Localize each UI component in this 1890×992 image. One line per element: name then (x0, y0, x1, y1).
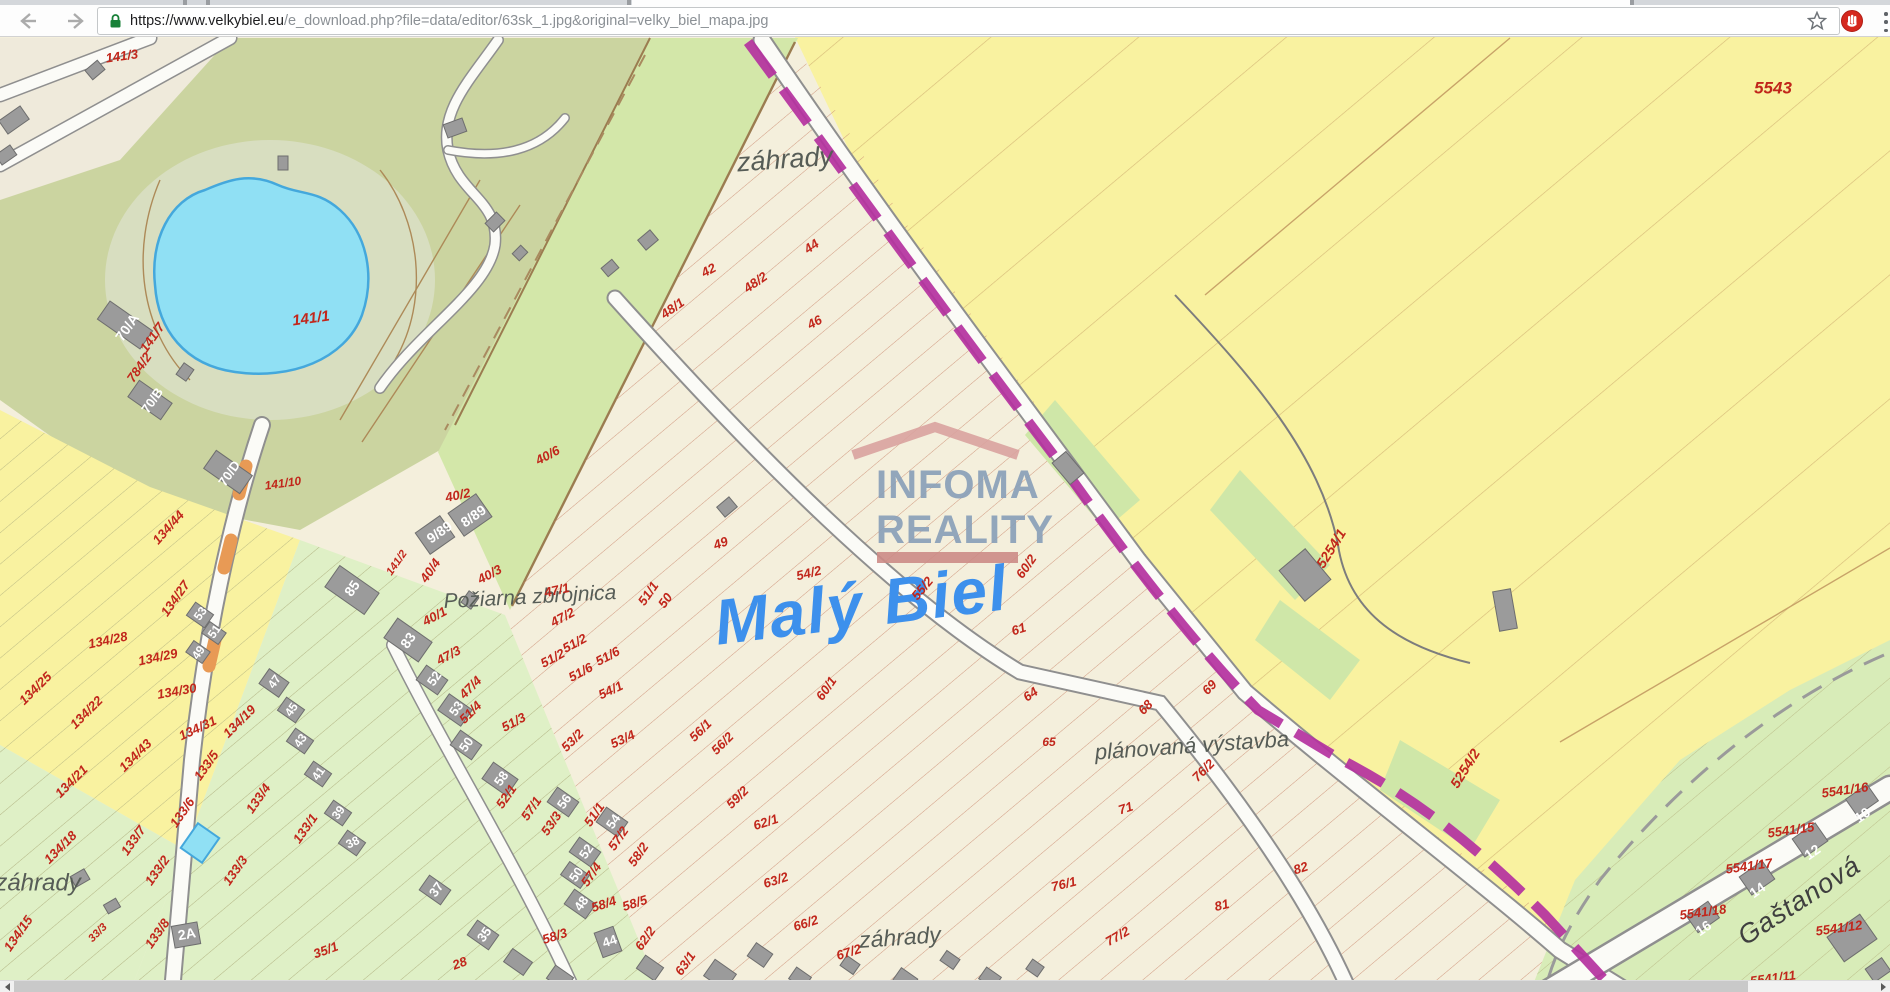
forward-button[interactable] (64, 9, 88, 33)
bookmark-star-button[interactable] (1805, 10, 1829, 32)
map-label: záhrady (0, 869, 83, 896)
address-bar[interactable]: https://www.velkybiel.eu/e_download.php?… (97, 7, 1840, 35)
map-label: 2A (177, 924, 197, 943)
map-label: 5543 (1754, 78, 1792, 97)
horizontal-scrollbar[interactable] (0, 980, 1890, 992)
extension-button[interactable] (1840, 9, 1864, 33)
building (278, 156, 288, 170)
url-domain: https://www.velkybiel.eu (130, 13, 284, 29)
url-path: /e_download.php?file=data/editor/63sk_1.… (284, 13, 768, 29)
back-button[interactable] (16, 9, 40, 33)
forward-icon (65, 10, 87, 32)
url-text: https://www.velkybiel.eu/e_download.php?… (130, 13, 768, 29)
menu-button[interactable] (1882, 12, 1890, 32)
star-icon (1807, 11, 1827, 31)
scroll-left-arrow[interactable] (0, 981, 14, 992)
lock-icon[interactable] (109, 13, 122, 29)
back-icon (17, 10, 39, 32)
pond (154, 178, 368, 373)
scrollbar-thumb[interactable] (14, 981, 1748, 992)
cadastral-map-image[interactable]: INFOMA REALITY 141/3záhrady424448/248/14… (0, 37, 1890, 980)
map-svg: INFOMA REALITY 141/3záhrady424448/248/14… (0, 37, 1890, 980)
browser-window: https://www.velkybiel.eu/e_download.php?… (0, 0, 1890, 992)
red-hand-extension-icon (1840, 9, 1864, 33)
watermark-line1: INFOMA (876, 463, 1040, 507)
map-label: 65 (1042, 735, 1056, 749)
watermark-line2: REALITY (876, 508, 1054, 552)
scroll-right-arrow[interactable] (1876, 981, 1890, 992)
browser-toolbar: https://www.velkybiel.eu/e_download.php?… (0, 5, 1890, 37)
